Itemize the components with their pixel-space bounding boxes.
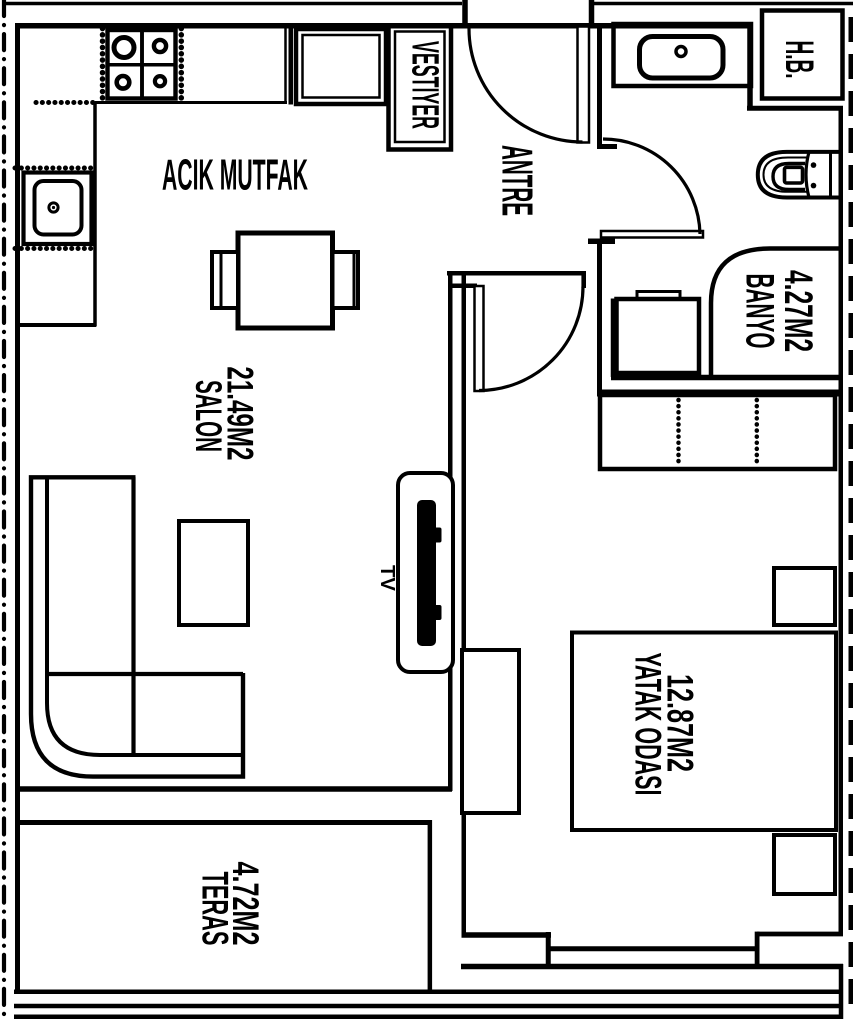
svg-text:ANTRE: ANTRE — [493, 145, 542, 216]
svg-text:4.27M2: 4.27M2 — [776, 270, 820, 352]
svg-text:TV: TV — [376, 565, 398, 592]
svg-text:YATAK ODASI: YATAK ODASI — [628, 653, 669, 796]
svg-text:H.B.: H.B. — [777, 41, 821, 79]
svg-text:VESTIYER: VESTIYER — [403, 41, 445, 129]
svg-text:BANYO: BANYO — [738, 274, 782, 349]
svg-text:ACIK MUTFAK: ACIK MUTFAK — [162, 151, 308, 200]
svg-text:TERAS: TERAS — [195, 872, 236, 946]
svg-text:SALON: SALON — [188, 380, 229, 452]
